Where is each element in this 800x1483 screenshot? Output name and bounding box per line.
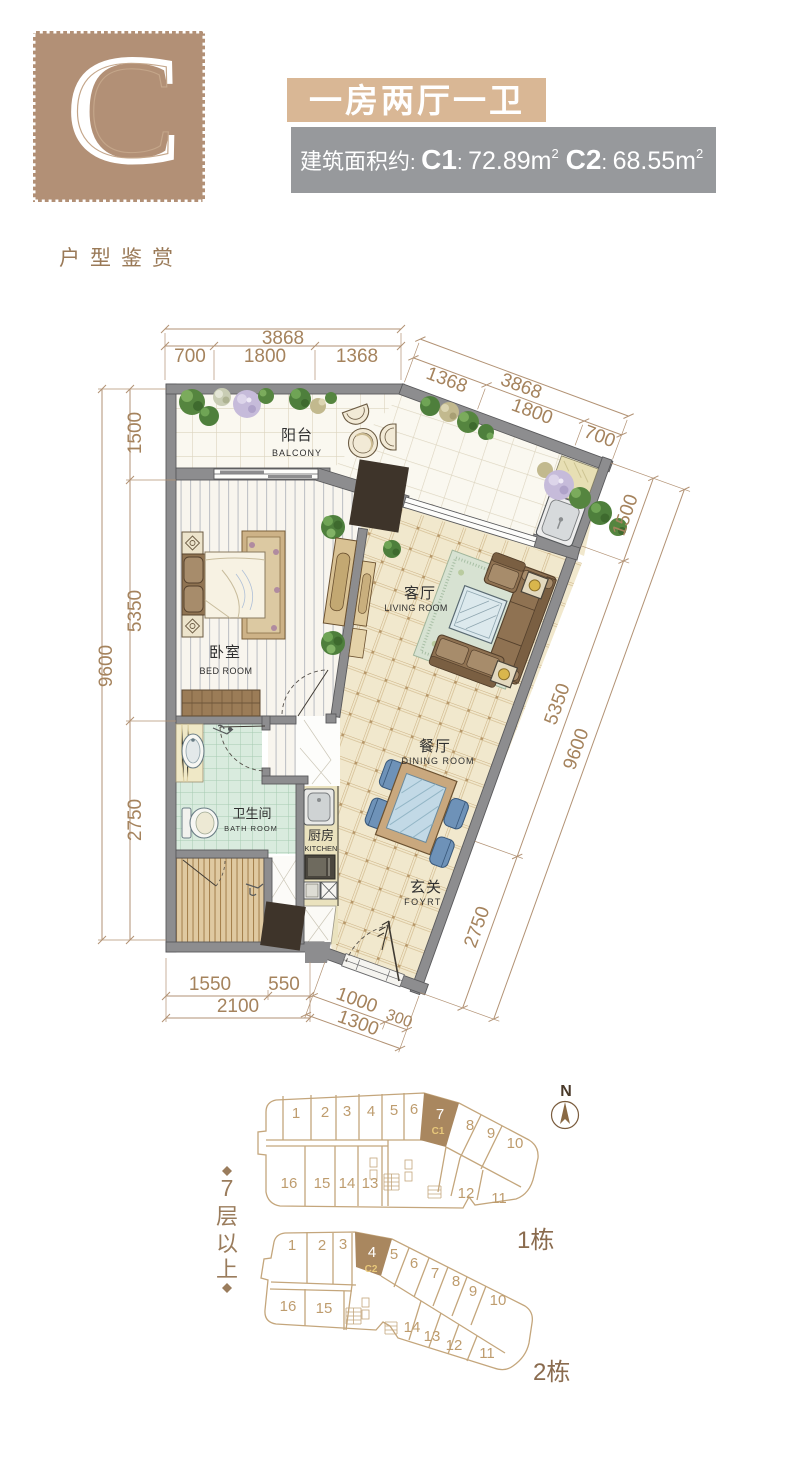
svg-text:DINING ROOM: DINING ROOM (402, 756, 475, 766)
svg-text:1800: 1800 (244, 346, 286, 367)
svg-text:5: 5 (390, 1102, 398, 1119)
svg-text:550: 550 (268, 974, 300, 995)
svg-text:阳台: 阳台 (281, 427, 313, 444)
svg-text:C1: C1 (432, 1126, 445, 1137)
svg-text:层: 层 (216, 1204, 238, 1229)
svg-text:客厅: 客厅 (404, 585, 436, 602)
svg-text:15: 15 (314, 1175, 331, 1192)
svg-text:BED ROOM: BED ROOM (199, 666, 252, 676)
svg-text:12: 12 (446, 1337, 463, 1354)
svg-text:户型鉴赏: 户型鉴赏 (59, 247, 183, 270)
svg-text:6: 6 (410, 1101, 418, 1118)
svg-text:1栋: 1栋 (517, 1227, 554, 1254)
svg-text:上: 上 (216, 1257, 238, 1282)
svg-text:8: 8 (466, 1117, 474, 1134)
svg-text:11: 11 (479, 1345, 495, 1362)
svg-text:一房两厅一卫: 一房两厅一卫 (309, 82, 525, 119)
svg-text:卧室: 卧室 (209, 644, 241, 661)
svg-text:16: 16 (281, 1175, 298, 1192)
svg-text:3: 3 (339, 1236, 347, 1253)
svg-text:以: 以 (216, 1231, 238, 1256)
svg-text:2栋: 2栋 (533, 1359, 570, 1386)
svg-text:N: N (560, 1083, 572, 1100)
svg-text:1: 1 (292, 1105, 300, 1122)
svg-text:建筑面积约: C1: 72.89m2 C2: 68.55m2: 建筑面积约: C1: 72.89m2 C2: 68.55m2 (300, 144, 703, 175)
svg-text:12: 12 (458, 1185, 475, 1202)
svg-text:13: 13 (424, 1328, 441, 1345)
svg-text:4: 4 (367, 1103, 375, 1120)
svg-text:厨房: 厨房 (308, 828, 334, 843)
svg-text:8: 8 (452, 1273, 460, 1290)
svg-text:15: 15 (316, 1300, 333, 1317)
svg-text:2100: 2100 (217, 996, 259, 1017)
svg-text:1550: 1550 (189, 974, 231, 995)
svg-text:1368: 1368 (336, 346, 378, 367)
svg-text:7: 7 (221, 1175, 234, 1201)
svg-text:11: 11 (491, 1190, 507, 1207)
svg-text:餐厅: 餐厅 (419, 738, 451, 755)
svg-text:1500: 1500 (125, 412, 146, 454)
svg-text:6: 6 (410, 1255, 418, 1272)
svg-text:C2: C2 (365, 1264, 378, 1275)
svg-text:玄关: 玄关 (410, 879, 442, 896)
svg-text:5: 5 (390, 1246, 398, 1263)
svg-text:14: 14 (339, 1175, 356, 1192)
svg-text:14: 14 (404, 1319, 421, 1336)
svg-text:1: 1 (288, 1237, 296, 1254)
svg-text:KITCHEN: KITCHEN (305, 844, 338, 853)
svg-text:13: 13 (362, 1175, 379, 1192)
svg-text:9600: 9600 (96, 645, 117, 687)
svg-text:9: 9 (469, 1283, 477, 1300)
svg-text:16: 16 (280, 1298, 297, 1315)
svg-text:10: 10 (507, 1135, 524, 1152)
svg-text:700: 700 (174, 346, 206, 367)
svg-text:7: 7 (436, 1106, 444, 1123)
svg-text:2: 2 (318, 1237, 326, 1254)
svg-text:LIVING ROOM: LIVING ROOM (384, 603, 447, 613)
svg-text:C: C (71, 32, 177, 188)
svg-text:4: 4 (368, 1244, 376, 1261)
svg-text:2: 2 (321, 1104, 329, 1121)
svg-text:FOYRT: FOYRT (404, 897, 442, 907)
svg-text:BALCONY: BALCONY (272, 448, 322, 458)
svg-text:2750: 2750 (125, 799, 146, 841)
svg-text:5350: 5350 (125, 590, 146, 632)
svg-text:9: 9 (487, 1125, 495, 1142)
svg-text:BATH ROOM: BATH ROOM (224, 824, 278, 833)
svg-text:卫生间: 卫生间 (232, 806, 271, 821)
svg-text:10: 10 (490, 1292, 507, 1309)
svg-text:3: 3 (343, 1103, 351, 1120)
svg-text:7: 7 (431, 1265, 439, 1282)
